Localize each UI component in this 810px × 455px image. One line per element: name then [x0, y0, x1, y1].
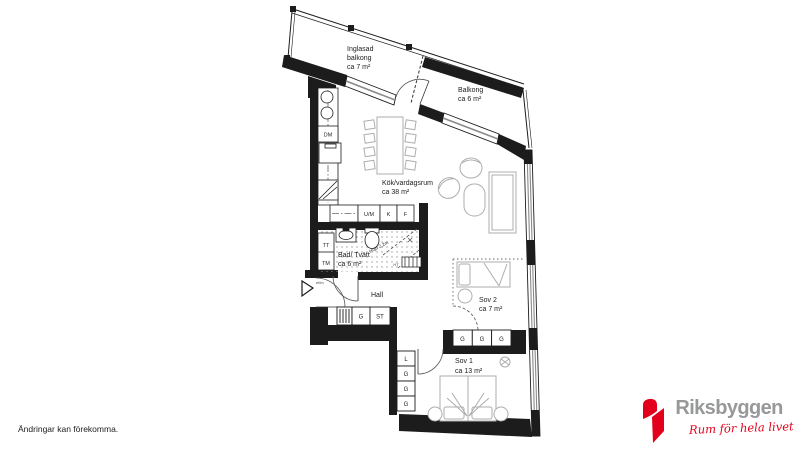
room-label-kok: Kök/vardagsrum — [382, 180, 433, 187]
dishwasher-label: DM — [324, 133, 333, 139]
room-label-balkong: Balkong — [458, 87, 483, 94]
room-area-balkong: ca 6 m² — [458, 96, 482, 103]
sov2-unit-label: G — [460, 337, 465, 343]
sink-bowl-icon — [321, 107, 333, 119]
double-bed — [440, 376, 496, 421]
sink-bowl-icon — [321, 91, 333, 103]
room-area-bad: ca 6 m² — [338, 261, 362, 268]
room-label-sov1: Sov 1 — [455, 358, 473, 365]
brand-name: Riksbyggen — [675, 398, 794, 419]
sov2-unit-label: G — [499, 337, 504, 343]
chair — [405, 147, 416, 157]
sov1-unit-label: G — [404, 372, 409, 378]
washer-label: TM — [322, 261, 330, 267]
pillow — [459, 264, 470, 285]
disclaimer-text: Ändringar kan förekomma. — [18, 424, 118, 434]
plant-icon — [500, 357, 510, 367]
chair — [405, 133, 416, 143]
brand-tagline: Rum för hela livet — [689, 419, 794, 437]
armchair — [434, 173, 463, 202]
room-label-sov2: Sov 2 — [479, 297, 497, 304]
east-wall — [524, 150, 540, 436]
stove-icon — [319, 143, 341, 163]
entry-note: el/m — [316, 280, 324, 285]
pillow — [444, 407, 464, 419]
sov1-unit-label: G — [404, 402, 409, 408]
oven-micro-label: U/M — [364, 212, 374, 218]
chair — [364, 147, 375, 157]
chair — [364, 120, 375, 130]
glazing-post — [406, 44, 412, 50]
lounge-furniture — [434, 158, 516, 233]
glazing-post — [348, 25, 354, 31]
corner-counter — [330, 205, 358, 222]
balcony-door-swing — [396, 79, 429, 104]
riksbyggen-logo: Riksbyggen Rum för hela livet — [641, 398, 794, 445]
hall-unit-label: G — [359, 315, 364, 321]
bedside-table — [458, 289, 472, 303]
hat-shelf-icon — [337, 307, 352, 325]
room-area-sov1: ca 13 m² — [455, 368, 483, 375]
sov1-room — [397, 351, 510, 421]
hall-unit-label: ST — [376, 315, 384, 321]
floorplan-page: el/m DM U/M K F — [0, 0, 810, 455]
pillow — [472, 407, 492, 419]
sov1-door-swing — [418, 349, 443, 374]
fridge-label: K — [387, 212, 391, 218]
armchair — [460, 158, 482, 178]
bedside-table — [428, 407, 442, 421]
riksbyggen-logo-icon — [641, 398, 669, 445]
ottoman — [464, 184, 485, 216]
sov1-unit-label: G — [404, 387, 409, 393]
room-label-hall: Hall — [371, 292, 384, 299]
sov2-unit-label: G — [480, 337, 485, 343]
dining-table-group — [364, 117, 416, 174]
dryer-label: TT — [323, 243, 330, 249]
chair — [364, 160, 375, 170]
glazing-post — [290, 6, 296, 12]
floorplan-drawing: el/m DM U/M K F — [0, 0, 810, 455]
room-area-sov2: ca 7 m² — [479, 306, 503, 313]
chair — [364, 133, 375, 143]
sov2-door-swing-dashed — [453, 306, 478, 331]
room-label-inglasad-1: Inglasad — [347, 46, 374, 53]
towel-dryer-icon — [402, 257, 421, 267]
room-area-inglasad: ca 7 m² — [347, 64, 371, 71]
entrance-arrow-icon — [302, 281, 313, 296]
counter-appliance-icon — [318, 180, 338, 200]
room-label-bad: Bad/ Tvätt — [338, 252, 370, 259]
chair — [405, 160, 416, 170]
room-area-kok: ca 38 m² — [382, 189, 410, 196]
room-label-inglasad-2: balkong — [347, 55, 372, 62]
bathroom-door-swing — [333, 276, 358, 301]
bedside-table — [494, 407, 508, 421]
chair — [405, 120, 416, 130]
dining-table — [377, 117, 403, 174]
sov2-bed — [457, 262, 510, 287]
bathroom-sink-icon — [336, 228, 356, 242]
sideboard — [489, 172, 516, 233]
towel-dryer-label: HT — [393, 262, 399, 267]
